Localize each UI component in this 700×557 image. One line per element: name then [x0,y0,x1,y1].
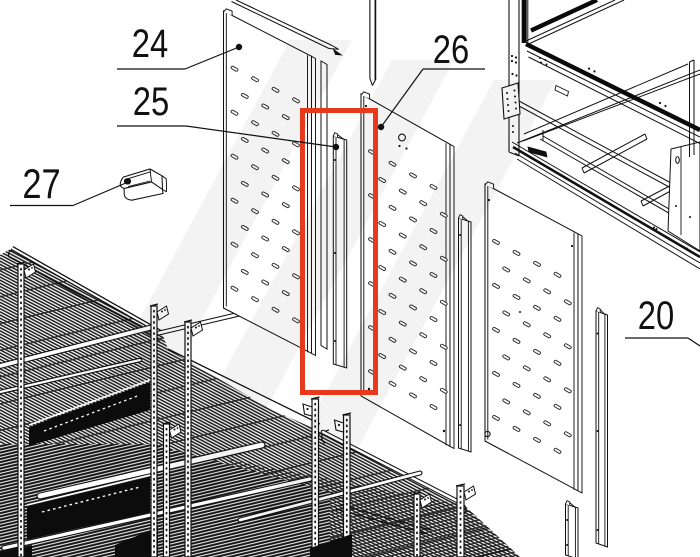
svg-text:25: 25 [133,79,169,124]
svg-text:26: 26 [433,27,469,72]
svg-text:27: 27 [22,161,60,208]
svg-text:24: 24 [132,21,168,66]
svg-text:20: 20 [638,293,674,338]
